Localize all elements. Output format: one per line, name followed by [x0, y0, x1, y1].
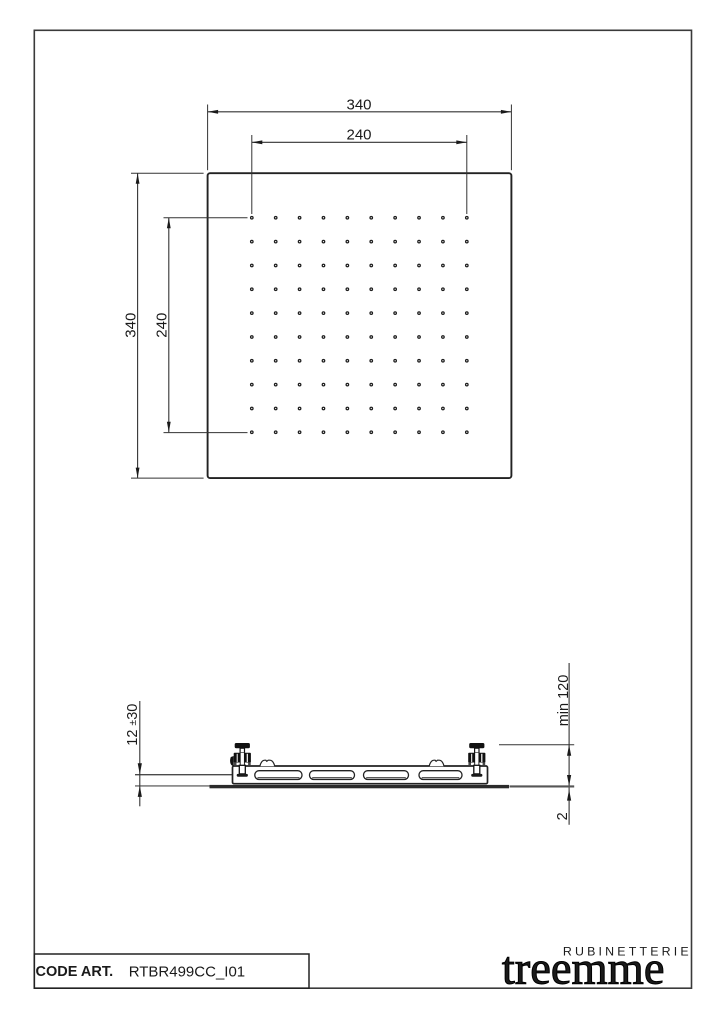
- svg-text:CODE ART.: CODE ART.: [36, 964, 114, 980]
- svg-text:340: 340: [123, 313, 140, 338]
- svg-text:min 120: min 120: [556, 675, 572, 727]
- svg-text:treemme: treemme: [502, 944, 665, 995]
- svg-text:240: 240: [346, 127, 371, 144]
- svg-text:340: 340: [346, 96, 371, 113]
- svg-text:2: 2: [555, 812, 571, 820]
- svg-text:RTBR499CC_I01: RTBR499CC_I01: [129, 963, 245, 980]
- svg-text:240: 240: [153, 313, 170, 338]
- svg-text:12 ±30: 12 ±30: [125, 704, 141, 746]
